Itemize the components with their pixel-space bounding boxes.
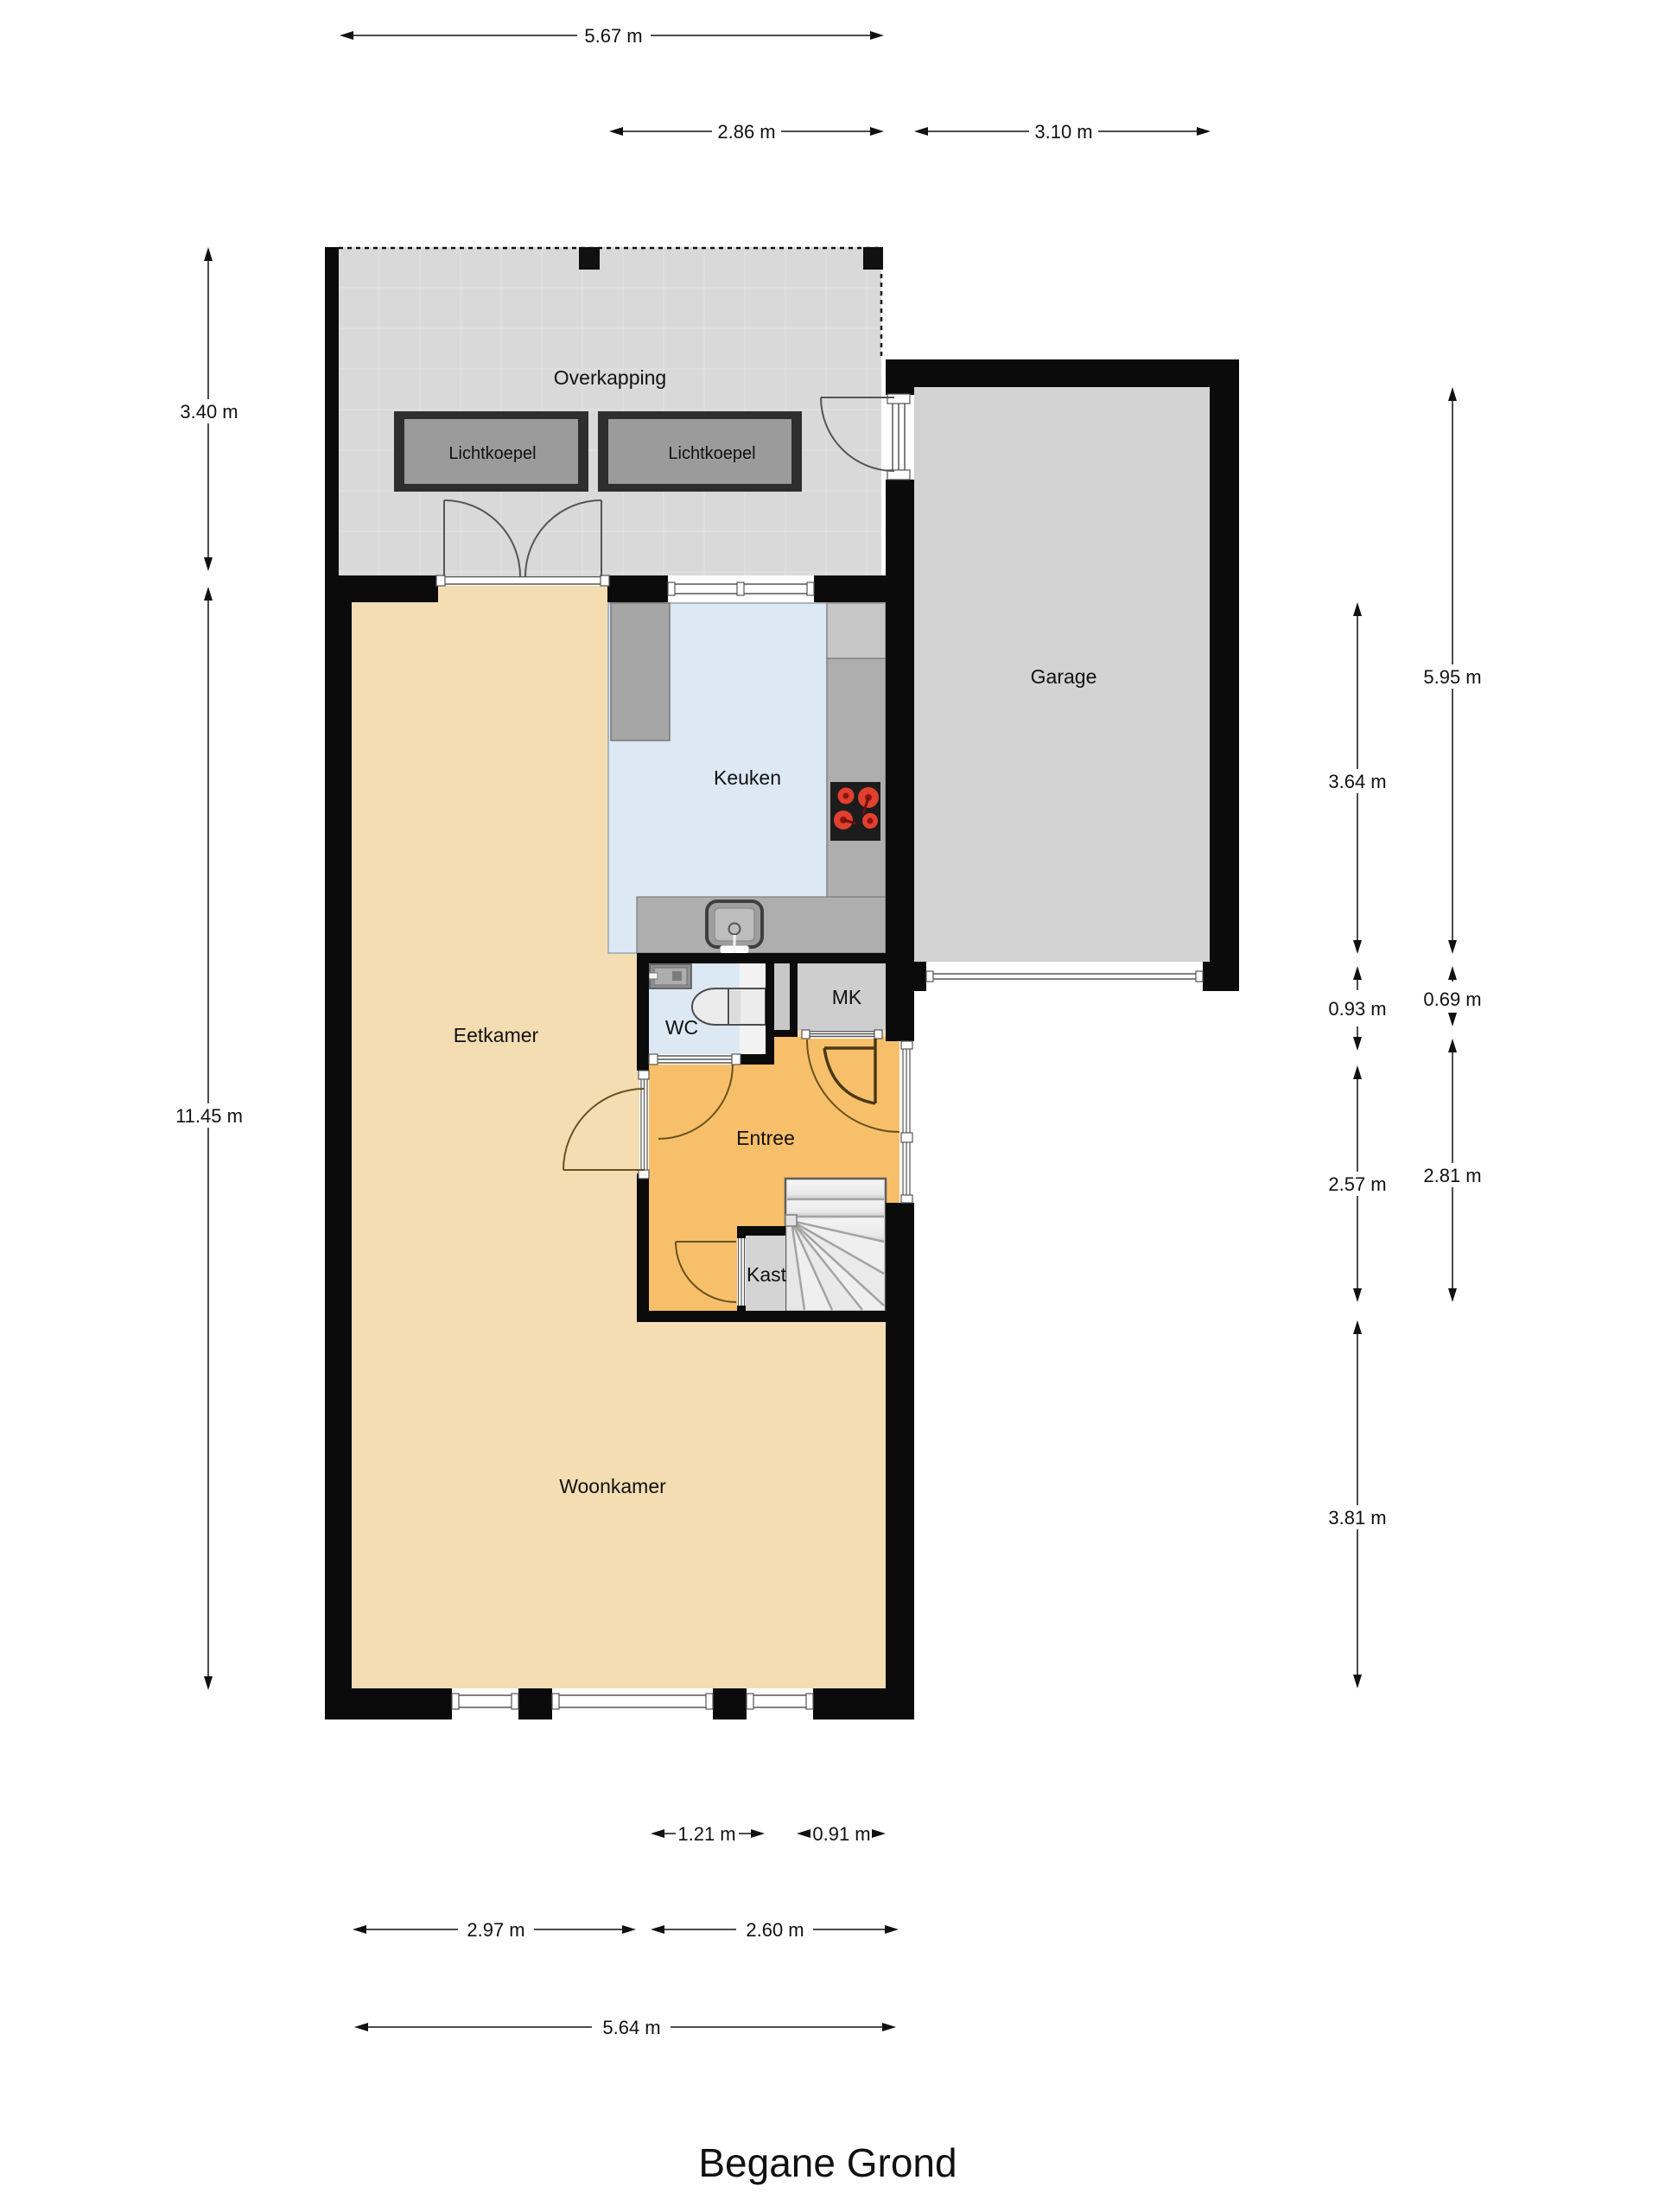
svg-text:Overkapping: Overkapping (554, 366, 666, 389)
svg-text:0.93 m: 0.93 m (1328, 998, 1386, 1020)
svg-text:3.81 m: 3.81 m (1328, 1507, 1386, 1529)
svg-text:3.40 m: 3.40 m (180, 401, 238, 423)
svg-text:WC: WC (665, 1016, 698, 1039)
svg-text:1.21 m: 1.21 m (677, 1823, 735, 1845)
svg-text:5.95 m: 5.95 m (1423, 666, 1481, 688)
svg-text:Entree: Entree (736, 1127, 795, 1149)
svg-text:2.86 m: 2.86 m (717, 121, 775, 143)
svg-text:0.91 m: 0.91 m (812, 1823, 870, 1845)
svg-text:Eetkamer: Eetkamer (454, 1024, 539, 1046)
svg-text:Woonkamer: Woonkamer (559, 1475, 666, 1497)
svg-text:11.45 m: 11.45 m (175, 1105, 243, 1127)
svg-text:MK: MK (832, 986, 862, 1008)
svg-text:5.64 m: 5.64 m (602, 2017, 660, 2038)
svg-text:2.81 m: 2.81 m (1423, 1165, 1481, 1186)
svg-text:Begane Grond: Begane Grond (698, 2140, 957, 2185)
svg-text:Lichtkoepel: Lichtkoepel (448, 444, 536, 463)
svg-text:2.60 m: 2.60 m (746, 1919, 804, 1941)
svg-text:3.64 m: 3.64 m (1328, 771, 1386, 792)
svg-text:0.69 m: 0.69 m (1423, 988, 1481, 1010)
svg-text:Keuken: Keuken (714, 766, 781, 789)
svg-text:2.57 m: 2.57 m (1328, 1173, 1386, 1195)
svg-text:2.97 m: 2.97 m (467, 1919, 524, 1941)
svg-text:Lichtkoepel: Lichtkoepel (668, 444, 755, 463)
svg-text:5.67 m: 5.67 m (584, 25, 642, 47)
svg-text:3.10 m: 3.10 m (1034, 121, 1092, 143)
svg-text:Kast: Kast (747, 1263, 787, 1286)
svg-text:Garage: Garage (1031, 665, 1097, 688)
